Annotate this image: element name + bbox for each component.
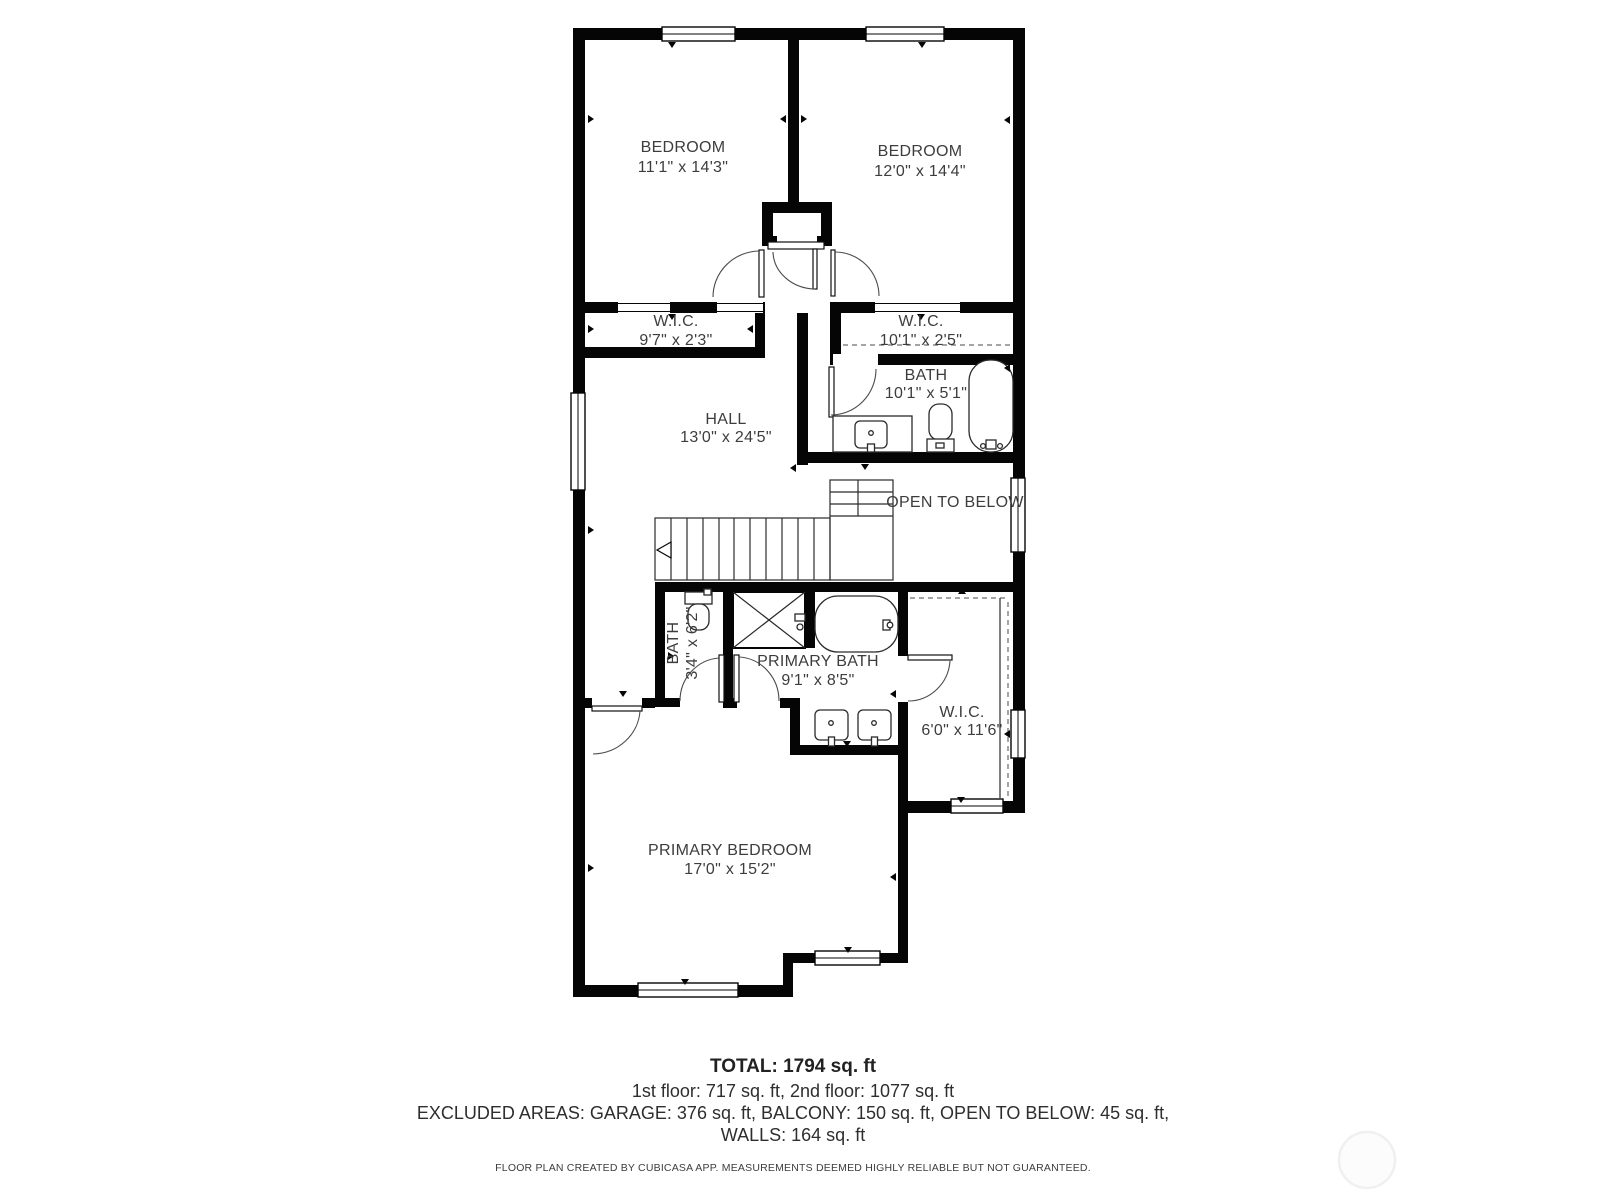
- label-wic-primary-dims: 6'0" x 11'6": [921, 722, 1002, 739]
- primary-wic-door: [908, 655, 952, 660]
- primary-bath-door: [734, 655, 739, 702]
- watermark-circle: [1339, 1132, 1395, 1188]
- label-wic-right-dims: 10'1" x 2'5": [880, 332, 962, 349]
- small-bath-door: [719, 655, 724, 702]
- shower-head: [797, 624, 803, 630]
- label-primary-bath: PRIMARY BATH: [757, 653, 879, 670]
- footer-excluded-areas: EXCLUDED AREAS: GARAGE: 376 sq. ft, BALC…: [417, 1103, 1169, 1123]
- label-wic-right: W.I.C.: [898, 313, 943, 330]
- footer-total: TOTAL: 1794 sq. ft: [710, 1056, 877, 1077]
- label-bath: BATH: [905, 367, 948, 384]
- hall-closet-door: [813, 249, 817, 289]
- bedroom-2-door: [831, 250, 835, 296]
- footer-disclaimer: FLOOR PLAN CREATED BY CUBICASA APP. MEAS…: [495, 1162, 1091, 1174]
- bathtub: [969, 360, 1013, 452]
- label-hall: HALL: [705, 411, 746, 428]
- label-primary-bath-dims: 9'1" x 8'5": [781, 672, 854, 689]
- footer-floors: 1st floor: 717 sq. ft, 2nd floor: 1077 s…: [632, 1081, 954, 1101]
- label-bedroom-1-dims: 11'1" x 14'3": [638, 159, 728, 176]
- label-wic-primary: W.I.C.: [939, 704, 984, 721]
- bedroom-1-door: [759, 250, 764, 297]
- label-wic-left: W.I.C.: [653, 313, 698, 330]
- label-small-bath: BATH: [665, 622, 682, 665]
- label-open-to-below: OPEN TO BELOW: [886, 494, 1024, 511]
- label-primary-bedroom-dims: 17'0" x 15'2": [684, 861, 776, 878]
- floor-plan: BEDROOM 11'1" x 14'3" BEDROOM 12'0" x 14…: [0, 0, 1600, 1200]
- label-wic-left-dims: 9'7" x 2'3": [639, 332, 712, 349]
- label-primary-bedroom: PRIMARY BEDROOM: [648, 842, 812, 859]
- label-bath-dims: 10'1" x 5'1": [885, 385, 967, 402]
- label-hall-dims: 13'0" x 24'5": [680, 429, 772, 446]
- primary-bedroom-door: [592, 706, 642, 711]
- label-bedroom-2-dims: 12'0" x 14'4": [874, 163, 966, 180]
- label-bedroom-2: BEDROOM: [878, 143, 963, 160]
- footer-walls: WALLS: 164 sq. ft: [721, 1125, 865, 1145]
- label-small-bath-dims: 3'4" x 6'2": [684, 606, 701, 679]
- bath-door: [829, 367, 834, 417]
- toilet: [929, 404, 952, 440]
- label-bedroom-1: BEDROOM: [641, 139, 726, 156]
